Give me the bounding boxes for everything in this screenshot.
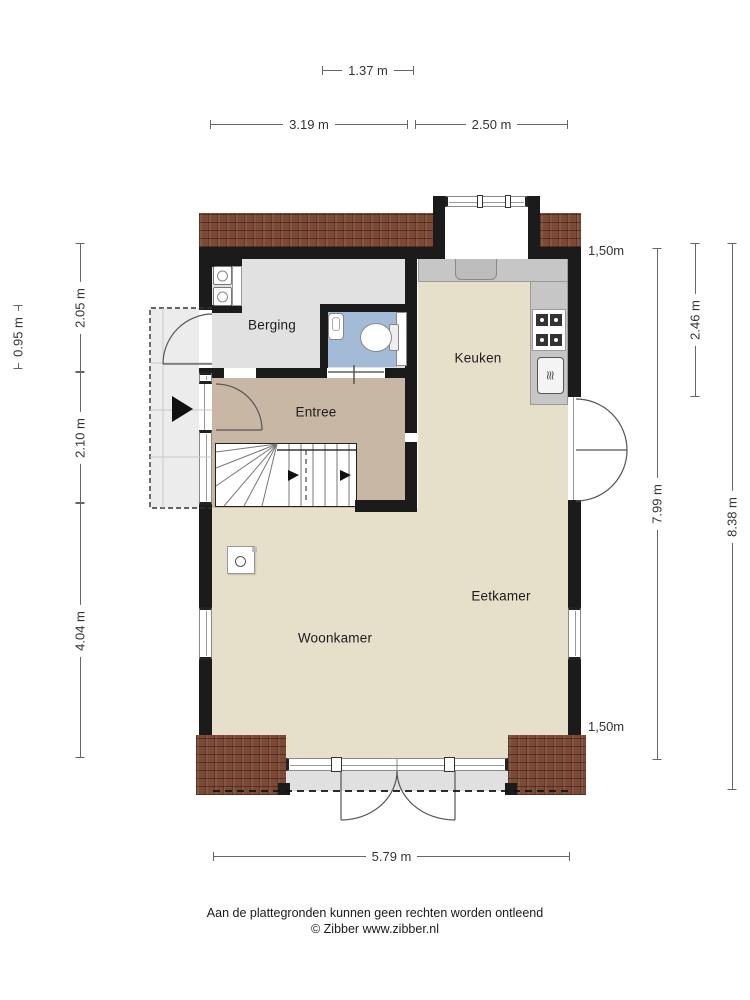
wall-berging-entree-3	[385, 368, 417, 378]
dim-right-kitchen: 2.46 m	[687, 243, 703, 397]
room-label-entree: Entree	[296, 405, 337, 420]
dim-top-right: 2.50 m	[415, 117, 568, 132]
bay-window	[445, 196, 528, 207]
facade-stub-left	[278, 783, 290, 795]
roof-band-top	[199, 213, 433, 247]
dim-top-bay: 1.37 m	[322, 63, 414, 78]
berging-entree-door-gap	[224, 368, 256, 378]
room-label-eetkamer: Eetkamer	[471, 589, 530, 604]
wall-interior-vertical	[405, 247, 417, 512]
bathroom-slide-gap	[327, 368, 385, 378]
dim-left-middle: 2.10 m	[72, 372, 88, 503]
living-floor	[212, 508, 568, 735]
closet-divider	[232, 266, 242, 306]
bathroom-wall-left	[320, 304, 328, 368]
roof-corner-bottom-right	[508, 735, 586, 795]
room-label-berging: Berging	[248, 318, 296, 333]
bay-wall-left	[433, 196, 445, 259]
dim-right-overhang-bottom: 1,50m	[588, 719, 624, 734]
rear-glass-facade	[286, 758, 508, 771]
facade-post-right	[444, 757, 455, 772]
stove-pipe-icon	[252, 547, 257, 552]
dim-top-left: 3.19 m	[210, 117, 408, 132]
berging-door-opening	[199, 310, 212, 368]
room-label-woonkamer: Woonkamer	[298, 631, 372, 646]
entree-kitchen-gap	[405, 433, 417, 442]
credit-text: © Zibber www.zibber.nl	[0, 922, 750, 936]
disclaimer-text: Aan de plattegronden kunnen geen rechten…	[0, 906, 750, 920]
living-window-left	[199, 607, 212, 660]
washer-icon	[213, 266, 232, 285]
bathroom-sink-icon	[328, 313, 344, 340]
toilet-bowl-icon	[360, 323, 392, 352]
front-door-opening	[199, 384, 212, 430]
garden-door-opening	[568, 397, 581, 500]
wall-top-right	[540, 247, 581, 259]
roof-corner-bottom-left	[196, 735, 286, 795]
floor-plan-page: ≋	[0, 0, 750, 1000]
living-floor-bay	[286, 735, 508, 758]
wood-stove-icon	[227, 546, 255, 574]
closet-stub-bottom	[212, 305, 242, 313]
dim-right-outer: 8.38 m	[724, 243, 740, 790]
dim-bottom-width: 5.79 m	[213, 849, 570, 864]
dim-left-lower: 4.04 m	[72, 503, 88, 758]
entree-window-lower	[199, 430, 212, 505]
dim-right-overhang-top: 1,50m	[588, 243, 624, 258]
room-label-keuken: Keuken	[455, 351, 502, 366]
entree-window-upper	[199, 372, 212, 384]
wall-entree-living	[355, 500, 415, 512]
bay-interior	[445, 206, 528, 259]
bay-window-post-2	[505, 195, 511, 208]
bathroom-wall-top	[320, 304, 417, 312]
wall-top-left	[199, 247, 433, 259]
stove-icon	[532, 309, 566, 351]
dim-left-porch: 0.95 m	[10, 305, 26, 369]
bay-window-post-1	[477, 195, 483, 208]
dining-window-right	[568, 607, 581, 660]
oven-icon: ≋	[537, 357, 564, 394]
facade-stub-right	[505, 783, 517, 795]
dim-left-upper: 2.05 m	[72, 243, 88, 372]
dim-right-inner: 7.99 m	[649, 248, 665, 760]
bay-wall-right	[528, 196, 540, 259]
facade-post-left	[331, 757, 342, 772]
dryer-icon	[213, 287, 232, 306]
wall-berging-entree-2	[256, 368, 327, 378]
staircase	[215, 443, 357, 507]
terrace-strip	[286, 771, 508, 791]
roof-band-top-right	[540, 213, 581, 247]
